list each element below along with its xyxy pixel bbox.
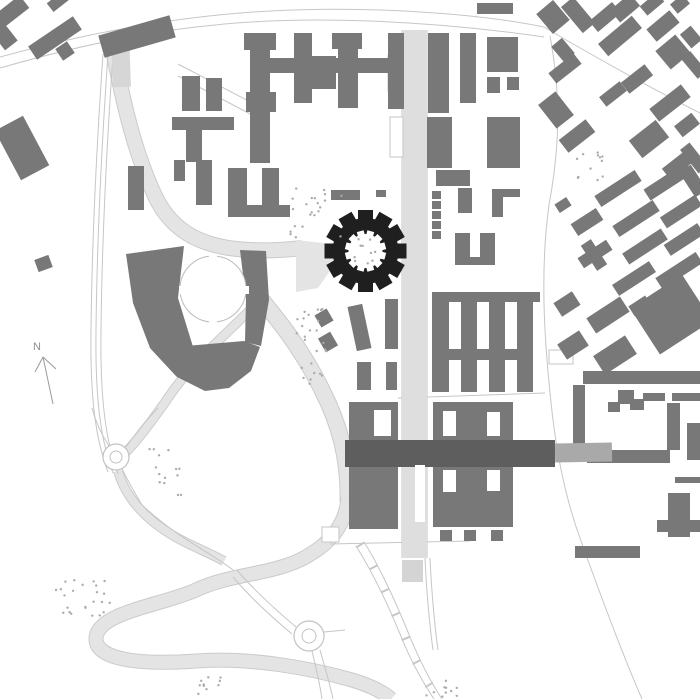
roads-thin xyxy=(0,9,700,699)
crossing-band xyxy=(345,440,612,467)
rail-lines xyxy=(91,54,118,474)
buildings-southwest-of-gear xyxy=(314,299,398,390)
north-arrow xyxy=(35,357,56,404)
north-label: N xyxy=(33,341,41,353)
buildings-old-town-mid xyxy=(538,54,700,180)
buildings-campus xyxy=(128,33,404,217)
buildings-bottom-right xyxy=(573,371,700,558)
buildings-east-slabs xyxy=(553,162,700,374)
buildings-top-left xyxy=(0,0,176,272)
roundabouts xyxy=(103,444,324,651)
site-plan-map: N xyxy=(0,0,700,699)
site-plan-page: N xyxy=(0,0,700,699)
circular-plaza xyxy=(180,256,246,322)
gear-building xyxy=(325,210,407,292)
buildings-east-strip xyxy=(427,3,540,392)
